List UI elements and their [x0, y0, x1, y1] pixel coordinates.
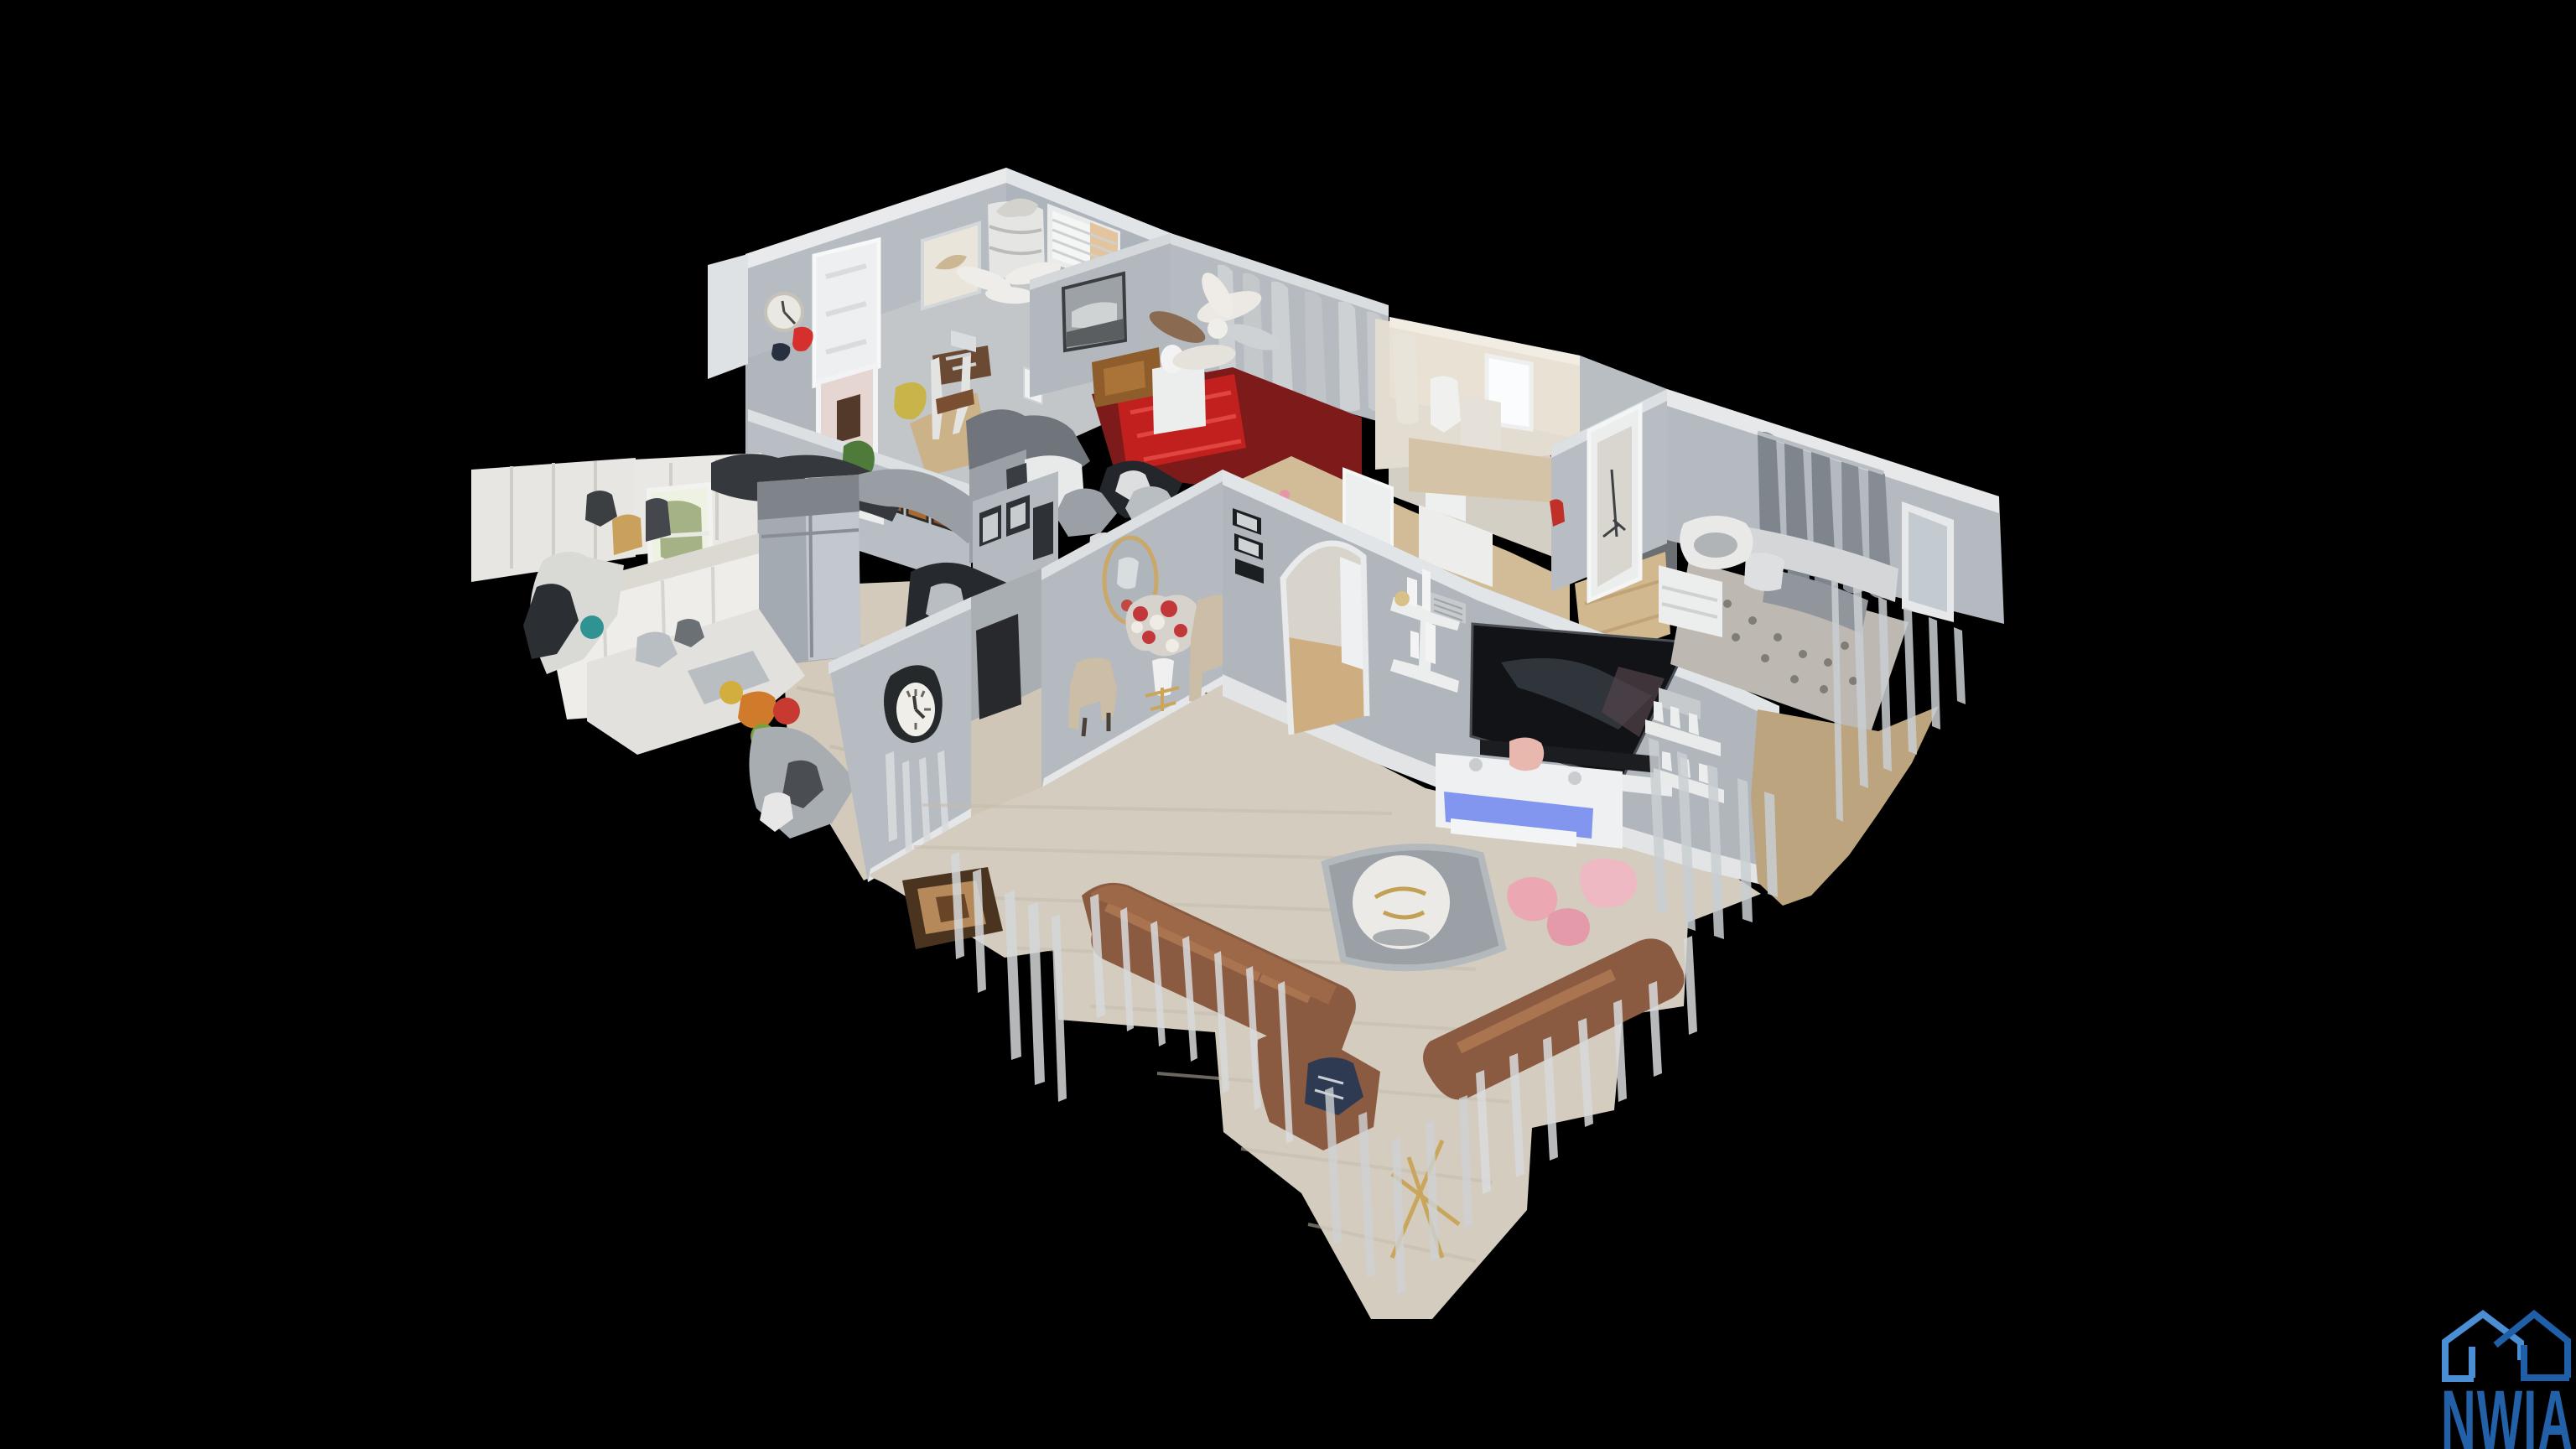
svg-text:NWIA: NWIA [2441, 1373, 2573, 1449]
